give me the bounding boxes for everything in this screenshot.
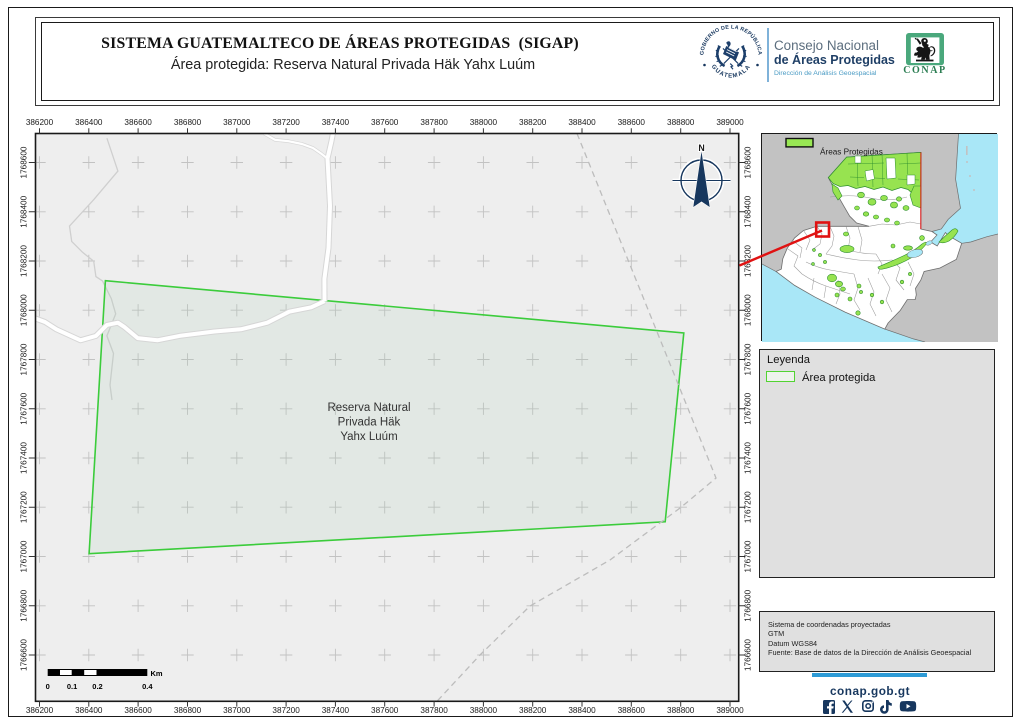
svg-text:1767000: 1767000 <box>20 540 29 572</box>
svg-text:Km: Km <box>151 669 163 678</box>
svg-text:387800: 387800 <box>420 118 448 127</box>
svg-text:387200: 387200 <box>272 706 300 715</box>
svg-text:1768200: 1768200 <box>744 245 753 277</box>
svg-text:1768000: 1768000 <box>744 294 753 326</box>
svg-text:387400: 387400 <box>322 706 350 715</box>
svg-text:1767200: 1767200 <box>744 491 753 523</box>
svg-text:388200: 388200 <box>519 118 547 127</box>
svg-text:386400: 386400 <box>75 118 103 127</box>
svg-text:386800: 386800 <box>174 706 202 715</box>
svg-text:389000: 389000 <box>716 118 744 127</box>
svg-text:387600: 387600 <box>371 706 399 715</box>
svg-text:1768400: 1768400 <box>744 195 753 227</box>
svg-text:386600: 386600 <box>124 706 152 715</box>
svg-text:388600: 388600 <box>618 118 646 127</box>
svg-text:Yahx Luúm: Yahx Luúm <box>340 431 397 443</box>
svg-text:1768600: 1768600 <box>744 146 753 178</box>
svg-text:1767000: 1767000 <box>744 540 753 572</box>
svg-text:1767400: 1767400 <box>20 442 29 474</box>
svg-text:1767600: 1767600 <box>744 392 753 424</box>
svg-text:1768000: 1768000 <box>20 294 29 326</box>
svg-text:1768400: 1768400 <box>20 195 29 227</box>
svg-text:387400: 387400 <box>322 118 350 127</box>
svg-text:388800: 388800 <box>667 118 695 127</box>
svg-text:0.2: 0.2 <box>92 682 102 691</box>
svg-text:386800: 386800 <box>174 118 202 127</box>
svg-text:387800: 387800 <box>420 706 448 715</box>
svg-text:388000: 388000 <box>470 706 498 715</box>
svg-text:Privada Häk: Privada Häk <box>338 417 401 429</box>
svg-text:1767800: 1767800 <box>20 343 29 375</box>
svg-text:0.1: 0.1 <box>67 682 77 691</box>
svg-text:386400: 386400 <box>75 706 103 715</box>
svg-text:388200: 388200 <box>519 706 547 715</box>
svg-text:0.4: 0.4 <box>142 682 153 691</box>
svg-text:386200: 386200 <box>26 706 54 715</box>
svg-text:388000: 388000 <box>470 118 498 127</box>
svg-text:386600: 386600 <box>124 118 152 127</box>
svg-text:388600: 388600 <box>618 706 646 715</box>
svg-text:387600: 387600 <box>371 118 399 127</box>
svg-text:387000: 387000 <box>223 118 251 127</box>
svg-text:1766800: 1766800 <box>20 589 29 621</box>
svg-text:387000: 387000 <box>223 706 251 715</box>
svg-text:0: 0 <box>46 682 50 691</box>
svg-text:1767400: 1767400 <box>744 442 753 474</box>
svg-text:1767800: 1767800 <box>744 343 753 375</box>
svg-text:388400: 388400 <box>568 706 596 715</box>
svg-text:1766600: 1766600 <box>20 639 29 671</box>
svg-text:1766800: 1766800 <box>744 589 753 621</box>
svg-text:1767600: 1767600 <box>20 392 29 424</box>
svg-text:389000: 389000 <box>716 706 744 715</box>
svg-text:388400: 388400 <box>568 118 596 127</box>
svg-text:CONAP: CONAP <box>903 65 947 76</box>
svg-text:1768200: 1768200 <box>20 245 29 277</box>
svg-text:Áreas Protegidas: Áreas Protegidas <box>820 147 883 157</box>
svg-text:1766600: 1766600 <box>744 639 753 671</box>
svg-text:386200: 386200 <box>26 118 54 127</box>
svg-text:388800: 388800 <box>667 706 695 715</box>
svg-text:N: N <box>698 143 704 153</box>
svg-text:Reserva Natural: Reserva Natural <box>327 402 410 414</box>
svg-text:1767200: 1767200 <box>20 491 29 523</box>
svg-text:387200: 387200 <box>272 118 300 127</box>
svg-text:1768600: 1768600 <box>20 146 29 178</box>
